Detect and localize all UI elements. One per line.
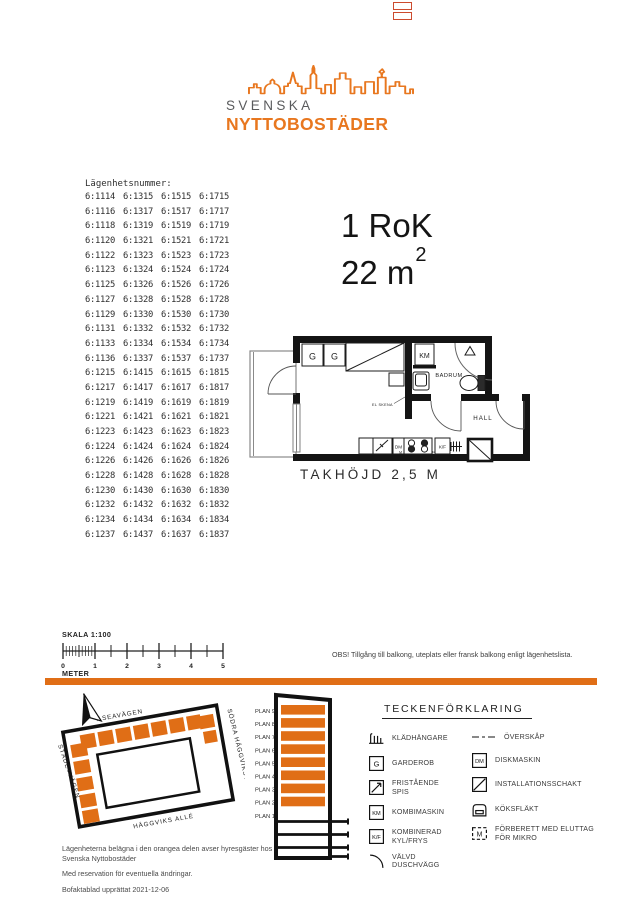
- apartment-number: 6:1515: [161, 190, 199, 205]
- stack-floor-label: PLAN 7: [255, 735, 275, 741]
- footer-line-3: Bofaktablad upprättat 2021-12-06: [62, 885, 274, 895]
- apartment-row: 6:12266:14266:16266:1826: [85, 454, 237, 469]
- scale-tick-label: 2: [125, 663, 129, 670]
- legend-column-right: ÖVERSKÅPDMDISKMASKININSTALLATIONSSCHAKTK…: [471, 730, 608, 878]
- scale-tick-label: 5: [221, 663, 225, 670]
- apartment-row: 6:12216:14216:16216:1821: [85, 410, 237, 425]
- apartment-number: 6:1619: [161, 396, 199, 411]
- legend: TECKENFÖRKLARING KLÄDHÄNGAREGGARDEROBFRI…: [368, 699, 608, 878]
- apartment-number: 6:1323: [123, 249, 161, 264]
- koksflakt-icon: [471, 801, 488, 818]
- apartment-number: 6:1428: [123, 469, 161, 484]
- apartment-number: 6:1528: [161, 293, 199, 308]
- apartment-number: 6:1523: [161, 249, 199, 264]
- svg-text:G: G: [374, 759, 380, 768]
- floor-bar: [281, 784, 325, 794]
- apartment-number: 6:1721: [199, 234, 237, 249]
- bedside-unit: [389, 373, 404, 386]
- apartment-number: 6:1426: [123, 454, 161, 469]
- apartment-number: 6:1114: [85, 190, 123, 205]
- legend-item: VÄLVD DUSCHVÄGG: [368, 853, 471, 870]
- apartment-number: 6:1734: [199, 337, 237, 352]
- apartment-number: 6:1524: [161, 263, 199, 278]
- apartment-number: 6:1632: [161, 498, 199, 513]
- apartment-number: 6:1615: [161, 366, 199, 381]
- fridge-label: K/F: [439, 445, 446, 450]
- apartment-row: 6:11316:13326:15326:1732: [85, 322, 237, 337]
- shower-symbol: [465, 347, 475, 356]
- floor-bar: [281, 731, 325, 741]
- stack-floor-label: PLAN 9: [255, 709, 275, 715]
- mikro-icon: M: [471, 825, 488, 842]
- apartment-number: 6:1815: [199, 366, 237, 381]
- apartment-number: 6:1421: [123, 410, 161, 425]
- legend-item-label: FÖRBERETT MED ELUTTAG FÖR MIKRO: [495, 825, 607, 842]
- apartment-row: 6:11336:13346:15346:1734: [85, 337, 237, 352]
- apartment-row: 6:12306:14306:16306:1830: [85, 484, 237, 499]
- ceiling-height-label: TAKHÖJD 2,5 M: [300, 467, 441, 482]
- svg-text:DM: DM: [475, 758, 484, 764]
- apartment-number: 6:1123: [85, 263, 123, 278]
- floor-plan: G G KM BADRUM HALL DM K/F M M EL SKENA: [243, 322, 533, 472]
- stack-floor-label: PLAN 1: [255, 814, 275, 820]
- scale-tick-label: 4: [189, 663, 193, 670]
- apartment-number: 6:1221: [85, 410, 123, 425]
- apartment-row: 6:11276:13286:15286:1728: [85, 293, 237, 308]
- apartment-number: 6:1519: [161, 219, 199, 234]
- apartment-number: 6:1537: [161, 352, 199, 367]
- apartment-number: 6:1237: [85, 528, 123, 543]
- stove: [404, 438, 432, 454]
- fristaende-spis-icon: [368, 779, 385, 796]
- apartment-row: 6:12346:14346:16346:1834: [85, 513, 237, 528]
- site-map: ASEAVÄGEN SÖDRA HÄGGVIKSVÄGEN STÄDETVÄGE…: [45, 686, 245, 844]
- stack-floor-label: PLAN 5: [255, 761, 275, 767]
- wardrobe-label: G: [309, 352, 316, 362]
- apartment-number: 6:1133: [85, 337, 123, 352]
- legend-item: KLÄDHÄNGARE: [368, 730, 471, 747]
- stack-floor-label: PLAN 6: [255, 748, 275, 754]
- apartment-number: 6:1823: [199, 425, 237, 440]
- scale-tick-label: 3: [157, 663, 161, 670]
- wardrobe-label: G: [331, 352, 338, 362]
- dishwasher-label: DM: [395, 445, 402, 450]
- stack-floor-label: PLAN 8: [255, 722, 275, 728]
- apartment-number: 6:1634: [161, 513, 199, 528]
- apartment-number: 6:1334: [123, 337, 161, 352]
- apartment-number: 6:1617: [161, 381, 199, 396]
- el-note: EL SKENA: [372, 403, 393, 407]
- balcony-note: OBS! Tillgång till balkong, uteplats ell…: [332, 650, 612, 659]
- apartment-number: 6:1437: [123, 528, 161, 543]
- apartment-number: 6:1226: [85, 454, 123, 469]
- apartment-number: 6:1423: [123, 425, 161, 440]
- apartment-number: 6:1228: [85, 469, 123, 484]
- unit-area: 22 m2: [341, 246, 433, 293]
- coat-hanger-icon: [368, 730, 385, 747]
- scale-unit: METER: [62, 669, 90, 678]
- scale-ruler: [63, 643, 223, 659]
- apartment-number: 6:1717: [199, 205, 237, 220]
- apartment-number: 6:1125: [85, 278, 123, 293]
- apartment-row: 6:12196:14196:16196:1819: [85, 396, 237, 411]
- legend-item-label: KOMBINERAD KYL/FRYS: [392, 828, 458, 845]
- apartment-number: 6:1337: [123, 352, 161, 367]
- apartment-row: 6:11206:13216:15216:1721: [85, 234, 237, 249]
- legend-item: GGARDEROB: [368, 755, 471, 772]
- scale-title: SKALA 1:100: [62, 630, 111, 639]
- apartment-number: 6:1521: [161, 234, 199, 249]
- apartment-row: 6:11366:13376:15376:1737: [85, 352, 237, 367]
- logo-line-2: NYTTOBOSTÄDER: [226, 114, 421, 135]
- floor-rows: PLAN 9PLAN 8PLAN 7PLAN 6PLAN 5PLAN 4PLAN…: [255, 705, 325, 820]
- apartment-number: 6:1324: [123, 263, 161, 278]
- floor-bar: [281, 718, 325, 728]
- apartment-number: 6:1821: [199, 410, 237, 425]
- apartment-number: 6:1621: [161, 410, 199, 425]
- apartment-number: 6:1623: [161, 425, 199, 440]
- washer-label: KM: [419, 353, 430, 360]
- legend-item: DMDISKMASKIN: [471, 752, 608, 769]
- apartment-number: 6:1430: [123, 484, 161, 499]
- floor-bar: [281, 771, 325, 781]
- apartment-number: 6:1530: [161, 308, 199, 323]
- apartment-number: 6:1432: [123, 498, 161, 513]
- legend-title: TECKENFÖRKLARING: [382, 703, 532, 719]
- apartment-number: 6:1326: [123, 278, 161, 293]
- apartment-number: 6:1223: [85, 425, 123, 440]
- apartment-number: 6:1120: [85, 234, 123, 249]
- apartment-row: 6:12176:14176:16176:1817: [85, 381, 237, 396]
- apartment-number: 6:1131: [85, 322, 123, 337]
- apartment-number: 6:1315: [123, 190, 161, 205]
- apartment-number: 6:1419: [123, 396, 161, 411]
- apartment-number: 6:1317: [123, 205, 161, 220]
- apartment-number: 6:1832: [199, 498, 237, 513]
- bofaktablad-page: SVENSKA NYTTOBOSTÄDER Lägenhetsnummer: 6…: [0, 0, 640, 901]
- apartment-number: 6:1224: [85, 440, 123, 455]
- kombimaskin-icon: KM: [368, 804, 385, 821]
- apartment-number: 6:1118: [85, 219, 123, 234]
- apartment-number: 6:1321: [123, 234, 161, 249]
- apartment-number: 6:1819: [199, 396, 237, 411]
- apartment-number: 6:1232: [85, 498, 123, 513]
- logo-line-1: SVENSKA: [226, 98, 421, 113]
- apartment-row: 6:12156:14156:16156:1815: [85, 366, 237, 381]
- apartment-number: 6:1217: [85, 381, 123, 396]
- apartment-number: 6:1215: [85, 366, 123, 381]
- apartment-number: 6:1136: [85, 352, 123, 367]
- apartment-number: 6:1129: [85, 308, 123, 323]
- apartment-grid: 6:11146:13156:15156:17156:11166:13176:15…: [85, 190, 237, 543]
- footer-line-1: Lägenheterna belägna i den orangea delen…: [62, 844, 274, 863]
- apartment-number: 6:1828: [199, 469, 237, 484]
- apartment-number: 6:1332: [123, 322, 161, 337]
- apartment-number: 6:1637: [161, 528, 199, 543]
- hall-label: HALL: [473, 415, 492, 422]
- apartment-number: 6:1719: [199, 219, 237, 234]
- apartment-number: 6:1517: [161, 205, 199, 220]
- scale-tick-label: 1: [93, 663, 97, 670]
- floor-bar: [281, 705, 325, 715]
- apartment-number: 6:1837: [199, 528, 237, 543]
- garderob-icon: G: [368, 755, 385, 772]
- kyl-frys-icon: K/F: [368, 828, 385, 845]
- legend-column-left: KLÄDHÄNGAREGGARDEROBFRISTÅENDE SPISKMKOM…: [368, 730, 471, 878]
- apartment-number: 6:1330: [123, 308, 161, 323]
- legend-item: INSTALLATIONSSCHAKT: [471, 776, 608, 793]
- apartment-row: 6:11236:13246:15246:1724: [85, 263, 237, 278]
- legend-item-label: KÖKSFLÄKT: [495, 805, 539, 814]
- apartment-number: 6:1732: [199, 322, 237, 337]
- svg-text:M: M: [477, 832, 483, 839]
- legend-item-label: INSTALLATIONSSCHAKT: [495, 780, 582, 789]
- apartment-row: 6:11226:13236:15236:1723: [85, 249, 237, 264]
- legend-item-label: GARDEROB: [392, 759, 434, 768]
- unit-type: 1 RoK: [341, 205, 433, 246]
- stack-floor-label: PLAN 2: [255, 801, 275, 807]
- apartment-number: 6:1534: [161, 337, 199, 352]
- apartment-number: 6:1434: [123, 513, 161, 528]
- orange-divider: [45, 678, 597, 685]
- apartment-row: 6:11296:13306:15306:1730: [85, 308, 237, 323]
- apartment-number: 6:1728: [199, 293, 237, 308]
- apartment-number: 6:1730: [199, 308, 237, 323]
- legend-item-label: KOMBIMASKIN: [392, 808, 444, 817]
- apartment-number: 6:1726: [199, 278, 237, 293]
- apartment-row: 6:12236:14236:16236:1823: [85, 425, 237, 440]
- apartment-number: 6:1817: [199, 381, 237, 396]
- apartment-number: 6:1234: [85, 513, 123, 528]
- apartment-number: 6:1628: [161, 469, 199, 484]
- stack-floor-label: PLAN 3: [255, 788, 275, 794]
- micro-marker: M: [432, 451, 435, 455]
- apartment-row: 6:11166:13176:15176:1717: [85, 205, 237, 220]
- legend-item-label: FRISTÅENDE SPIS: [392, 779, 458, 796]
- unit-summary: 1 RoK 22 m2: [341, 205, 433, 293]
- apartment-row: 6:12376:14376:16376:1837: [85, 528, 237, 543]
- apartment-number: 6:1116: [85, 205, 123, 220]
- legend-item: KMKOMBIMASKIN: [368, 804, 471, 821]
- apartment-number: 6:1127: [85, 293, 123, 308]
- building-section: PLAN 9PLAN 8PLAN 7PLAN 6PLAN 5PLAN 4PLAN…: [246, 692, 361, 864]
- apartment-number: 6:1532: [161, 322, 199, 337]
- toilet: [460, 376, 478, 391]
- apartment-number: 6:1724: [199, 263, 237, 278]
- floor-bar: [281, 744, 325, 754]
- area-superscript: 2: [415, 244, 426, 266]
- annotation-artifact: [393, 2, 412, 22]
- legend-item: MFÖRBERETT MED ELUTTAG FÖR MIKRO: [471, 825, 608, 842]
- apartment-number: 6:1630: [161, 484, 199, 499]
- apartment-number: 6:1834: [199, 513, 237, 528]
- scale-bar: SKALA 1:100 012345 METER: [60, 629, 235, 678]
- apartment-number: 6:1626: [161, 454, 199, 469]
- apartment-row: 6:11186:13196:15196:1719: [85, 219, 237, 234]
- apartment-number: 6:1723: [199, 249, 237, 264]
- apartment-number: 6:1417: [123, 381, 161, 396]
- apartment-number: 6:1424: [123, 440, 161, 455]
- apartment-number: 6:1824: [199, 440, 237, 455]
- apartment-number: 6:1826: [199, 454, 237, 469]
- skyline-icon: [248, 57, 414, 95]
- apartment-row: 6:12326:14326:16326:1832: [85, 498, 237, 513]
- legend-item-label: ÖVERSKÅP: [504, 733, 545, 742]
- apartment-number: 6:1328: [123, 293, 161, 308]
- apartment-number: 6:1219: [85, 396, 123, 411]
- apartment-number: 6:1415: [123, 366, 161, 381]
- apartment-number: 6:1230: [85, 484, 123, 499]
- coat-hanger-symbol: [451, 442, 462, 452]
- apartment-number: 6:1319: [123, 219, 161, 234]
- apartment-number: 6:1715: [199, 190, 237, 205]
- legend-item: FRISTÅENDE SPIS: [368, 779, 471, 796]
- floor-bar: [281, 757, 325, 767]
- apartment-number-list: Lägenhetsnummer: 6:11146:13156:15156:171…: [85, 179, 237, 543]
- footer-line-2: Med reservation för eventuella ändringar…: [62, 869, 274, 879]
- svg-text:KM: KM: [372, 811, 381, 817]
- apartment-row: 6:11146:13156:15156:1715: [85, 190, 237, 205]
- svg-text:K/F: K/F: [372, 835, 381, 841]
- floor-bar: [281, 797, 325, 807]
- installationsschakt-icon: [471, 776, 488, 793]
- window: [293, 404, 300, 452]
- legend-item-label: KLÄDHÄNGARE: [392, 734, 448, 743]
- apartment-list-heading: Lägenhetsnummer:: [85, 179, 237, 189]
- apartment-number: 6:1830: [199, 484, 237, 499]
- annotation-box: [393, 12, 412, 20]
- diskmaskin-icon: DM: [471, 752, 488, 769]
- company-logo: SVENSKA NYTTOBOSTÄDER: [226, 57, 421, 135]
- footer-notes: Lägenheterna belägna i den orangea delen…: [62, 844, 274, 900]
- overskap-icon: [471, 730, 497, 744]
- apartment-number: 6:1624: [161, 440, 199, 455]
- bathroom-label: BADRUM: [435, 373, 462, 379]
- apartment-number: 6:1122: [85, 249, 123, 264]
- apartment-row: 6:11256:13266:15266:1726: [85, 278, 237, 293]
- micro-marker: M: [399, 451, 402, 455]
- apartment-row: 6:12286:14286:16286:1828: [85, 469, 237, 484]
- apartment-number: 6:1737: [199, 352, 237, 367]
- legend-item: ÖVERSKÅP: [471, 730, 608, 744]
- annotation-box: [393, 2, 412, 10]
- legend-item: K/FKOMBINERAD KYL/FRYS: [368, 828, 471, 845]
- kitchen-cabinet: [359, 438, 373, 454]
- apartment-number: 6:1526: [161, 278, 199, 293]
- legend-item-label: DISKMASKIN: [495, 756, 541, 765]
- legend-item: KÖKSFLÄKT: [471, 801, 608, 818]
- stack-floor-label: PLAN 4: [255, 775, 276, 781]
- valvd-duschvagg-icon: [368, 853, 385, 870]
- apartment-row: 6:12246:14246:16246:1824: [85, 440, 237, 455]
- legend-item-label: VÄLVD DUSCHVÄGG: [392, 853, 458, 870]
- el-note-leader: [394, 397, 405, 404]
